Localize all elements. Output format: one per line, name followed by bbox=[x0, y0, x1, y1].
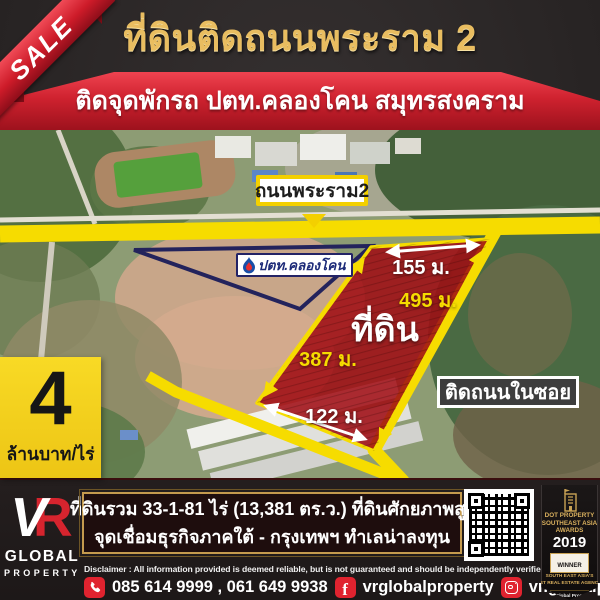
soi-road-label: ติดถนนในซอย bbox=[437, 376, 579, 408]
soi-road-text: ติดถนนในซอย bbox=[445, 376, 571, 408]
price-number: 4 bbox=[29, 367, 71, 432]
qr-finder-square bbox=[514, 493, 530, 509]
property-flyer: ที่ดินติดถนนพระราม 2 ติดจุดพักรถ ปตท.คลอ… bbox=[0, 0, 600, 600]
award-brand-line2: SOUTHEAST ASIA bbox=[542, 520, 597, 528]
award-sub-line1: SOUTH EAST ASIA'S bbox=[546, 574, 594, 580]
dimension-left: 387 ม. bbox=[294, 343, 362, 375]
land-info-box: ที่ดินรวม 33-1-81 ไร่ (13,381 ตร.ว.) ที่… bbox=[82, 492, 462, 554]
main-road bbox=[0, 225, 600, 234]
qr-finder-square bbox=[468, 541, 484, 557]
award-divider bbox=[550, 590, 589, 591]
subtitle-banner: ติดจุดพักรถ ปตท.คลองโคน สมุทรสงคราม bbox=[0, 72, 600, 130]
disclaimer-text: Disclaimer : All information provided is… bbox=[84, 564, 470, 574]
qr-finder-square bbox=[468, 493, 484, 509]
award-sub-line2: BEST REAL ESTATE AGENCIES bbox=[533, 581, 600, 587]
price-badge: 4 ล้านบาท/ไร่ bbox=[0, 357, 101, 478]
award-building-icon bbox=[559, 488, 581, 512]
subtitle-text: ติดจุดพักรถ ปตท.คลองโคน สมุทรสงคราม bbox=[75, 81, 524, 121]
vr-global-property-logo: VR GLOBAL PROPERTY bbox=[4, 490, 80, 578]
facebook-icon: f bbox=[335, 577, 356, 598]
facebook-handle: vrglobalproperty bbox=[363, 578, 494, 597]
instagram-icon bbox=[501, 577, 522, 598]
dimension-bottom: 122 ม. bbox=[299, 400, 369, 432]
logo-word-property: PROPERTY bbox=[4, 568, 80, 578]
phone-numbers: 085 614 9999 , 061 649 9938 bbox=[112, 578, 328, 597]
road-name-label: ถนนพระราม2 bbox=[256, 175, 368, 206]
land-info-line1: ที่ดินรวม 33-1-81 ไร่ (13,381 ตร.ว.) ที่… bbox=[70, 495, 474, 523]
qr-code bbox=[464, 489, 534, 561]
dimension-top: 155 ม. bbox=[385, 251, 457, 283]
footer: VR GLOBAL PROPERTY ที่ดินรวม 33-1-81 ไร่… bbox=[0, 478, 600, 600]
logo-word-global: GLOBAL bbox=[4, 548, 80, 566]
award-winner-text: WINNER bbox=[557, 563, 581, 569]
award-brand-line1: DOT PROPERTY bbox=[545, 512, 595, 520]
ptt-station-label: ปตท.คลองโคน bbox=[236, 253, 353, 277]
phone-icon bbox=[84, 577, 105, 598]
contact-row: 085 614 9999 , 061 649 9938 f vrglobalpr… bbox=[84, 577, 600, 598]
award-badge: DOT PROPERTY SOUTHEAST ASIA AWARDS 2019 … bbox=[541, 485, 598, 600]
logo-monogram: VR bbox=[4, 490, 80, 546]
price-unit: ล้านบาท/ไร่ bbox=[6, 440, 94, 468]
award-winner-box: WINNER bbox=[550, 553, 588, 573]
ptt-flame-icon bbox=[243, 257, 255, 274]
award-year: 2019 bbox=[553, 535, 586, 551]
road-name-text: ถนนพระราม2 bbox=[255, 176, 369, 206]
ptt-station-text: ปตท.คลองโคน bbox=[258, 254, 346, 276]
road-label-pointer bbox=[302, 214, 326, 228]
land-info-line2: จุดเชื่อมธุรกิจภาคใต้ - กรุงเทพฯ ทำเลน่า… bbox=[94, 523, 450, 551]
dimension-right: 495 ม. bbox=[392, 284, 464, 316]
